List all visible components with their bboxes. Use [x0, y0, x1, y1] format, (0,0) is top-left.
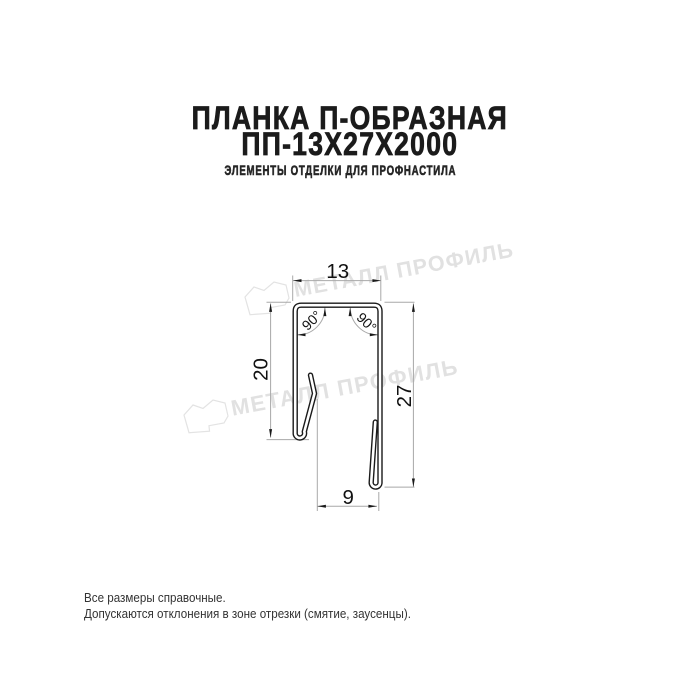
svg-text:90°: 90°: [298, 307, 324, 333]
svg-text:9: 9: [342, 486, 353, 509]
svg-text:20: 20: [249, 358, 272, 381]
svg-text:27: 27: [393, 385, 416, 408]
svg-text:90°: 90°: [354, 309, 380, 335]
svg-text:13: 13: [326, 260, 349, 283]
